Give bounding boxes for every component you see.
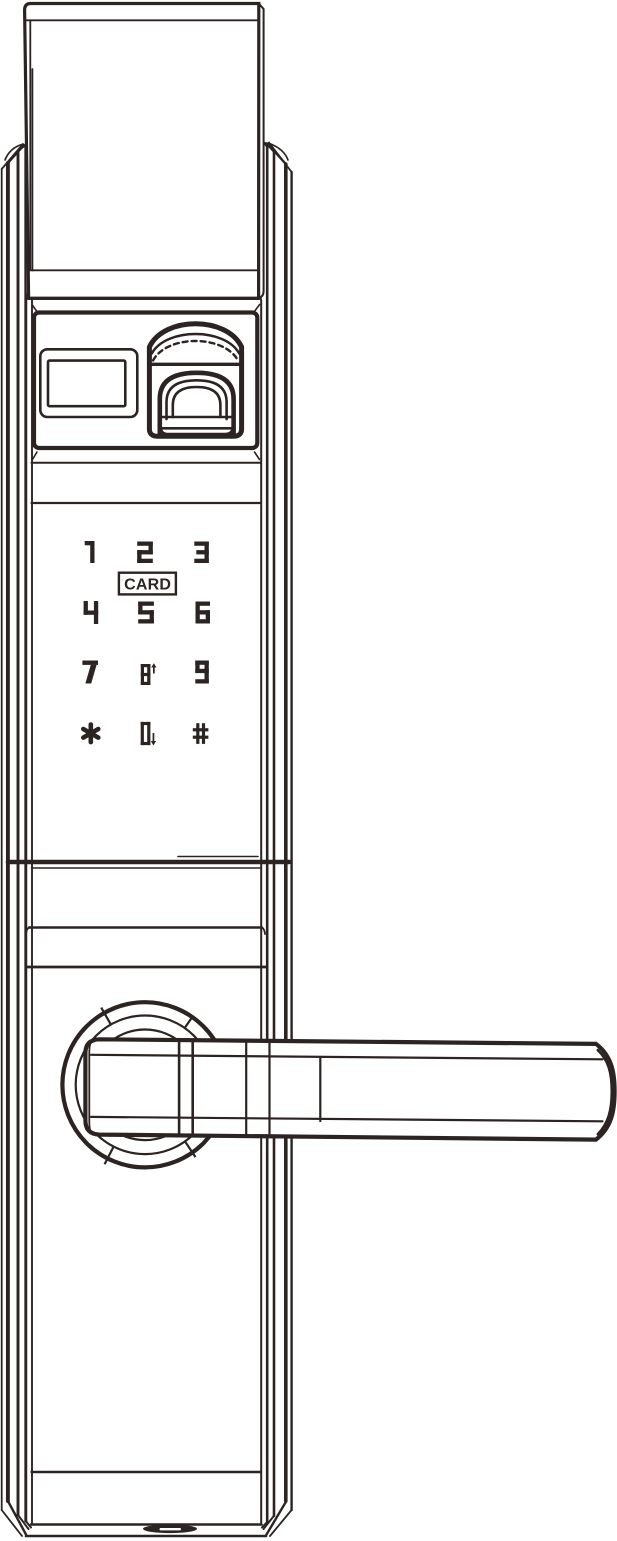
svg-text:CARD: CARD [124,577,171,594]
